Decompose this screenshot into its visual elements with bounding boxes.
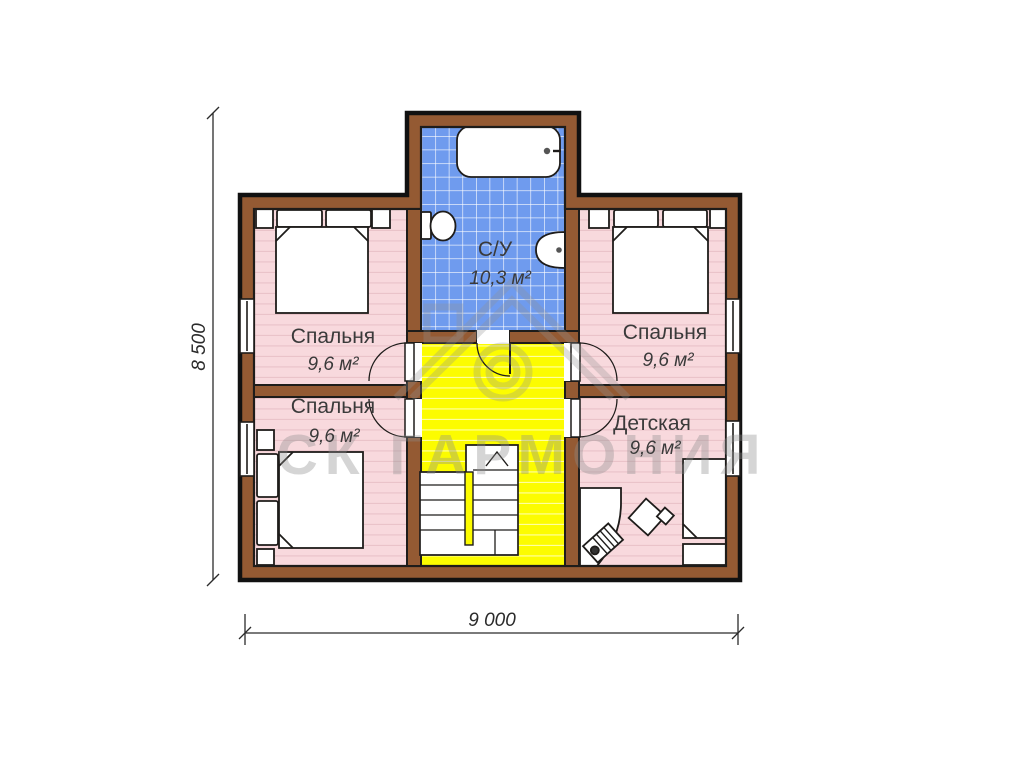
dimension-label-height: 8 500	[189, 323, 210, 371]
area-label-bedroom-bottom-left: 9,6 м²	[308, 426, 360, 447]
pillow	[257, 454, 278, 497]
window	[240, 422, 254, 476]
bed-body	[276, 227, 368, 313]
nightstand	[257, 549, 274, 565]
room-label-bedroom-bottom-left: Спальня	[291, 395, 375, 418]
bathtub-faucet-icon	[544, 148, 550, 154]
pillow	[326, 210, 371, 227]
door-leaf	[405, 343, 414, 381]
nightstand	[589, 209, 609, 228]
window	[240, 299, 254, 353]
floor-plan-canvas: СК ГАРМОНИЯ С/У 10,3 м² Спальня 9,6 м² С…	[0, 0, 1024, 768]
toilet-bowl	[431, 212, 456, 241]
floor-plan-drawing: СК ГАРМОНИЯ С/У 10,3 м² Спальня 9,6 м² С…	[0, 0, 1024, 768]
dimension-label-width: 9 000	[468, 610, 516, 631]
nightstand	[257, 430, 274, 450]
wall-hall-right-mid	[565, 381, 579, 399]
area-label-bedroom-top-right: 9,6 м²	[642, 350, 694, 371]
pillow	[257, 501, 278, 545]
room-label-bathroom: С/У	[478, 238, 513, 261]
toilet-tank	[421, 212, 431, 239]
area-label-bedroom-top-left: 9,6 м²	[307, 354, 359, 375]
pillow	[614, 210, 658, 227]
area-label-kids-room: 9,6 м²	[629, 438, 681, 459]
room-label-kids-room: Детская	[613, 412, 691, 435]
pillow	[663, 210, 707, 227]
room-label-bedroom-top-right: Спальня	[623, 321, 707, 344]
area-label-bathroom: 10,3 м²	[469, 268, 531, 289]
wall-bathroom-right	[565, 209, 579, 331]
bed-body	[613, 227, 708, 313]
nightstand	[256, 209, 273, 228]
pillow	[277, 210, 322, 227]
nightstand	[372, 209, 390, 228]
sink-faucet-icon	[556, 247, 562, 253]
room-label-bedroom-top-left: Спальня	[291, 325, 375, 348]
nightstand	[710, 209, 726, 228]
chest	[683, 544, 726, 565]
window	[726, 299, 740, 353]
wall-bathroom-left	[407, 209, 421, 331]
